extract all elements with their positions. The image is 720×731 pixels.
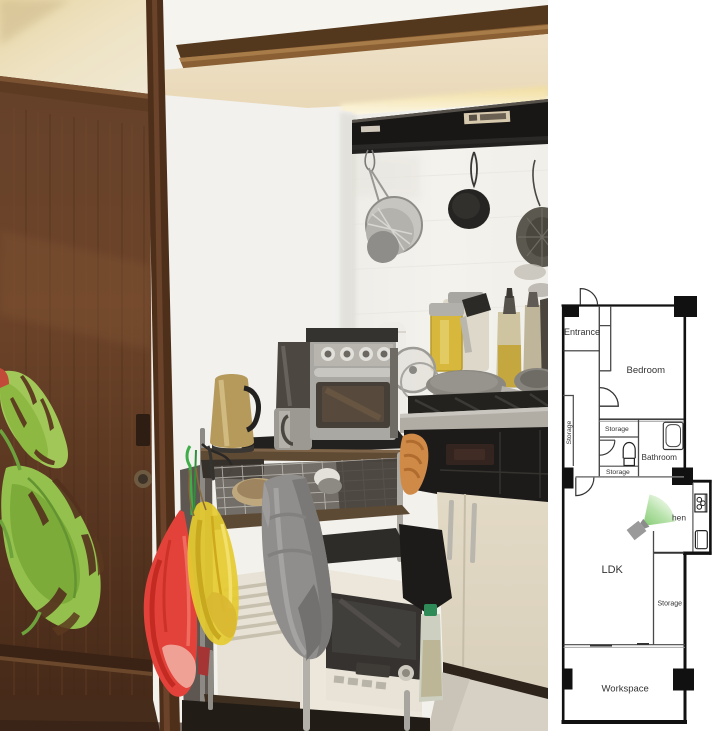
svg-text:Bedroom: Bedroom [627,365,666,376]
svg-text:Storage: Storage [566,420,573,444]
svg-text:Entrance: Entrance [564,327,600,337]
svg-text:hen: hen [672,512,686,522]
svg-text:LDK: LDK [602,564,624,576]
svg-text:Storage: Storage [606,469,630,476]
svg-text:Storage: Storage [658,601,683,608]
svg-text:Storage: Storage [605,426,629,433]
svg-text:Workspace: Workspace [602,684,649,695]
svg-text:Bathroom: Bathroom [642,453,678,462]
